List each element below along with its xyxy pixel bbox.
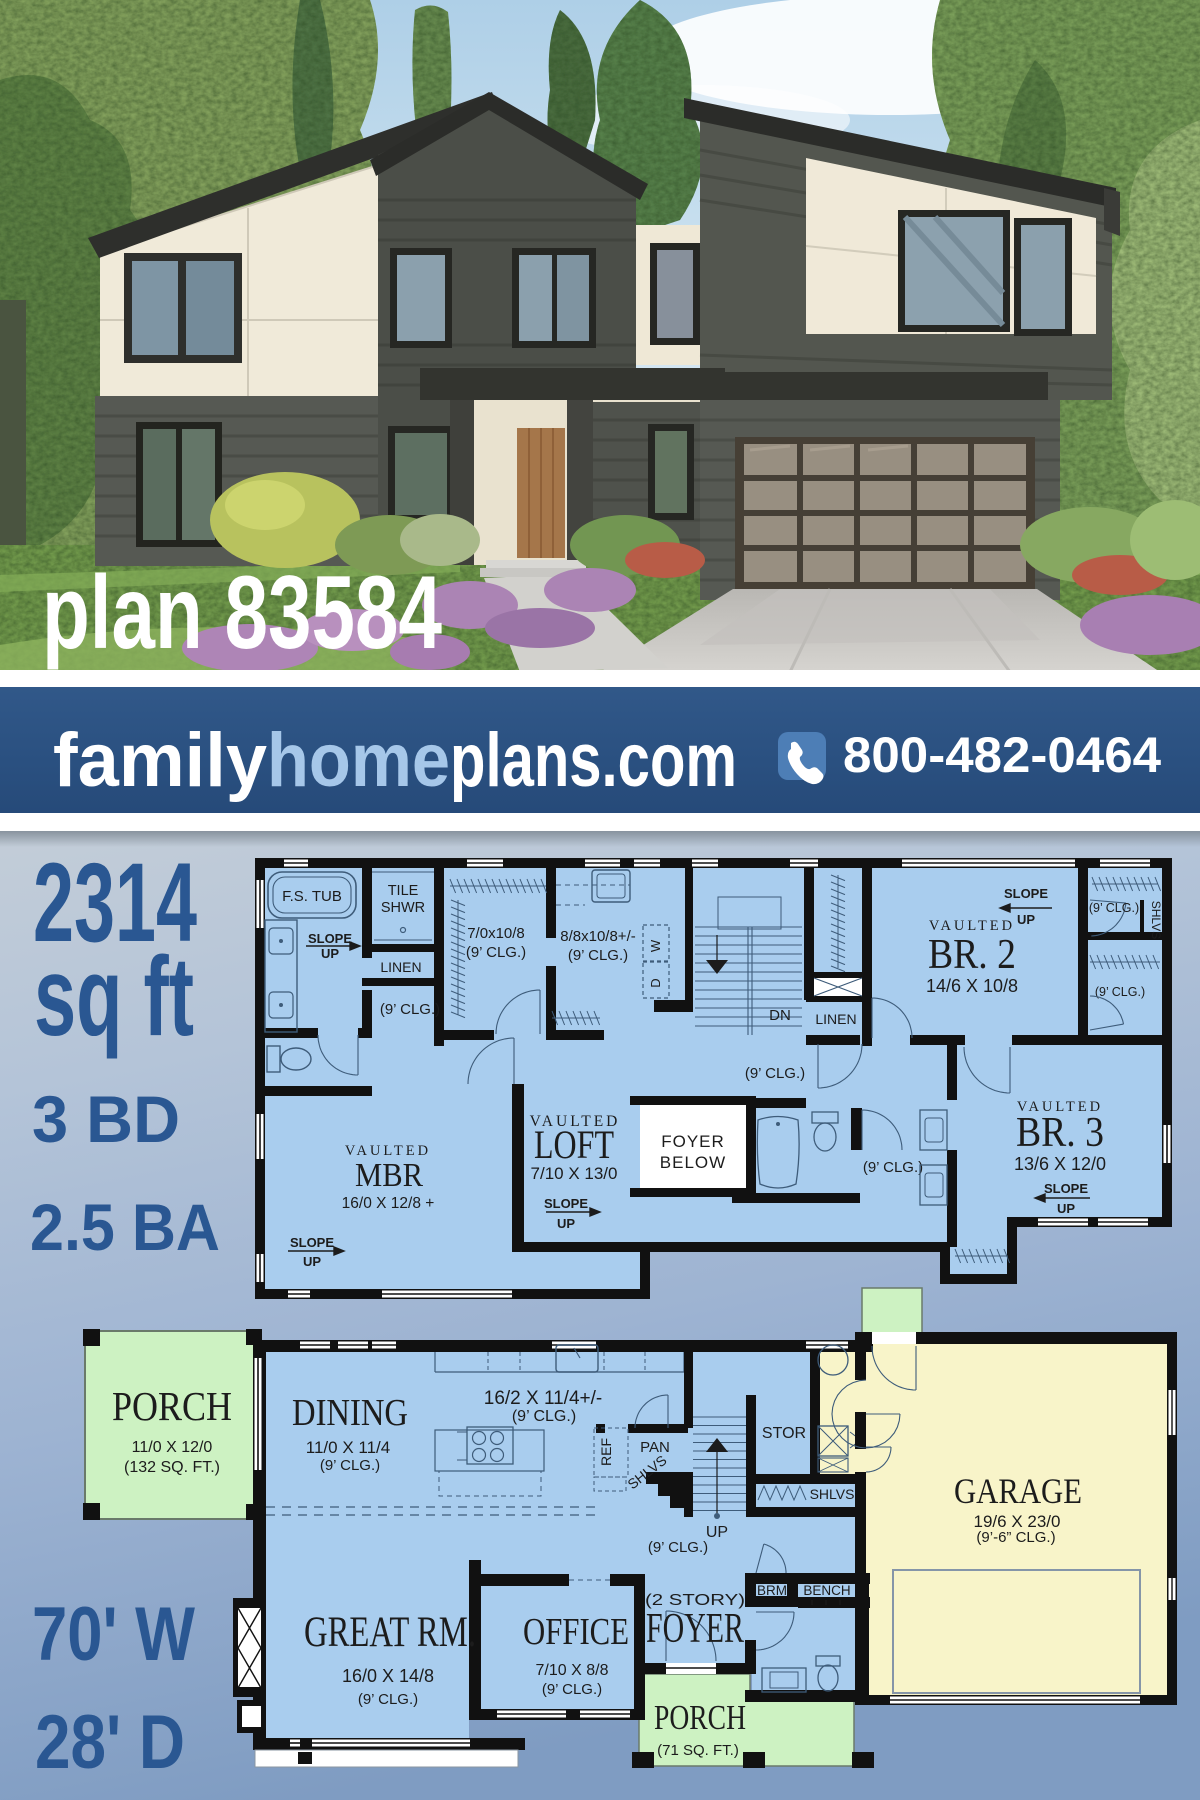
svg-text:TILE: TILE bbox=[388, 883, 419, 899]
svg-text:(9’ CLG.): (9’ CLG.) bbox=[380, 1001, 440, 1018]
svg-text:8/8x10/8+/-: 8/8x10/8+/- bbox=[560, 928, 635, 945]
svg-text:MBR: MBR bbox=[355, 1157, 423, 1194]
svg-text:SLOPE: SLOPE bbox=[1044, 1181, 1088, 1196]
svg-text:OFFICE: OFFICE bbox=[523, 1611, 629, 1653]
svg-text:SLOPE: SLOPE bbox=[544, 1196, 588, 1211]
svg-text:800-482-0464: 800-482-0464 bbox=[843, 727, 1161, 783]
svg-text:28' D: 28' D bbox=[35, 1700, 185, 1785]
svg-text:(9’ CLG.): (9’ CLG.) bbox=[466, 944, 526, 961]
svg-text:FOYER: FOYER bbox=[646, 1606, 744, 1652]
svg-text:(9’ CLG.): (9’ CLG.) bbox=[863, 1159, 923, 1176]
svg-text:PORCH: PORCH bbox=[654, 1698, 746, 1737]
svg-text:SHWR: SHWR bbox=[381, 900, 425, 916]
svg-text:plan 83584: plan 83584 bbox=[42, 555, 442, 670]
svg-text:7/0x10/8: 7/0x10/8 bbox=[467, 925, 525, 942]
svg-text:PAN: PAN bbox=[640, 1439, 670, 1456]
svg-text:(9’-6” CLG.): (9’-6” CLG.) bbox=[976, 1529, 1055, 1546]
svg-text:FOYER: FOYER bbox=[661, 1132, 725, 1151]
svg-text:W: W bbox=[648, 939, 663, 952]
svg-text:14/6 X 10/8: 14/6 X 10/8 bbox=[926, 976, 1018, 996]
svg-text:UP: UP bbox=[557, 1216, 575, 1231]
svg-text:LINEN: LINEN bbox=[815, 1011, 856, 1027]
svg-text:DN: DN bbox=[769, 1007, 791, 1024]
svg-text:11/0 X 11/4: 11/0 X 11/4 bbox=[306, 1438, 390, 1457]
svg-text:SLOPE: SLOPE bbox=[308, 931, 352, 946]
svg-text:(9’ CLG.): (9’ CLG.) bbox=[1089, 901, 1139, 915]
svg-text:family: family bbox=[53, 718, 267, 803]
svg-text:sq ft: sq ft bbox=[34, 934, 194, 1059]
svg-text:F.S. TUB: F.S. TUB bbox=[282, 888, 342, 905]
svg-text:(9’ CLG.): (9’ CLG.) bbox=[512, 1408, 576, 1425]
svg-text:LINEN: LINEN bbox=[380, 959, 421, 975]
svg-text:(132 SQ. FT.): (132 SQ. FT.) bbox=[124, 1459, 220, 1476]
svg-text:7/10 X 13/0: 7/10 X 13/0 bbox=[531, 1164, 618, 1183]
svg-text:D: D bbox=[648, 978, 663, 987]
svg-text:BELOW: BELOW bbox=[660, 1153, 726, 1172]
svg-text:UP: UP bbox=[1057, 1201, 1075, 1216]
svg-text:SLOPE: SLOPE bbox=[1004, 886, 1048, 901]
svg-text:16/2 X 11/4+/-: 16/2 X 11/4+/- bbox=[484, 1388, 602, 1409]
svg-text:BR. 2: BR. 2 bbox=[928, 932, 1016, 978]
svg-text:SHLVS: SHLVS bbox=[1149, 901, 1163, 939]
svg-text:UP: UP bbox=[321, 946, 339, 961]
svg-text:DINING: DINING bbox=[292, 1392, 408, 1434]
svg-text:3 BD: 3 BD bbox=[32, 1082, 180, 1156]
svg-text:UP: UP bbox=[706, 1524, 728, 1541]
svg-text:UP: UP bbox=[1017, 912, 1035, 927]
svg-text:(71 SQ. FT.): (71 SQ. FT.) bbox=[657, 1742, 739, 1759]
svg-text:(9’ CLG.): (9’ CLG.) bbox=[1095, 985, 1145, 999]
svg-text:16/0 X 12/8 +: 16/0 X 12/8 + bbox=[342, 1195, 435, 1212]
svg-text:(9’ CLG.): (9’ CLG.) bbox=[542, 1681, 602, 1698]
svg-text:(9’ CLG.): (9’ CLG.) bbox=[648, 1539, 708, 1556]
svg-text:LOFT: LOFT bbox=[534, 1122, 614, 1167]
svg-text:(9’ CLG.): (9’ CLG.) bbox=[568, 947, 628, 964]
svg-text:GARAGE: GARAGE bbox=[954, 1471, 1082, 1511]
svg-text:plans.com: plans.com bbox=[450, 718, 737, 803]
svg-text:home: home bbox=[267, 718, 450, 803]
svg-text:UP: UP bbox=[303, 1254, 321, 1269]
svg-text:(9’ CLG.): (9’ CLG.) bbox=[745, 1065, 805, 1082]
svg-text:16/0 X 14/8: 16/0 X 14/8 bbox=[342, 1666, 434, 1686]
svg-text:2.5 BA: 2.5 BA bbox=[30, 1190, 220, 1264]
svg-text:SLOPE: SLOPE bbox=[290, 1235, 334, 1250]
svg-text:(9’ CLG.): (9’ CLG.) bbox=[320, 1457, 380, 1474]
svg-text:BR. 3: BR. 3 bbox=[1016, 1110, 1104, 1156]
svg-text:BRM: BRM bbox=[757, 1583, 787, 1598]
svg-text:11/0 X 12/0: 11/0 X 12/0 bbox=[132, 1439, 213, 1456]
svg-text:7/10 X 8/8: 7/10 X 8/8 bbox=[536, 1662, 609, 1679]
svg-text:13/6 X 12/0: 13/6 X 12/0 bbox=[1014, 1154, 1106, 1174]
svg-text:PORCH: PORCH bbox=[112, 1383, 232, 1429]
svg-text:STOR: STOR bbox=[762, 1425, 806, 1442]
svg-text:SHLVS: SHLVS bbox=[810, 1486, 855, 1502]
svg-text:70' W: 70' W bbox=[32, 1592, 195, 1677]
svg-text:(9’ CLG.): (9’ CLG.) bbox=[358, 1691, 418, 1708]
svg-text:REF: REF bbox=[598, 1438, 614, 1466]
svg-text:GREAT RM.: GREAT RM. bbox=[304, 1609, 476, 1656]
svg-text:BENCH: BENCH bbox=[803, 1583, 850, 1598]
